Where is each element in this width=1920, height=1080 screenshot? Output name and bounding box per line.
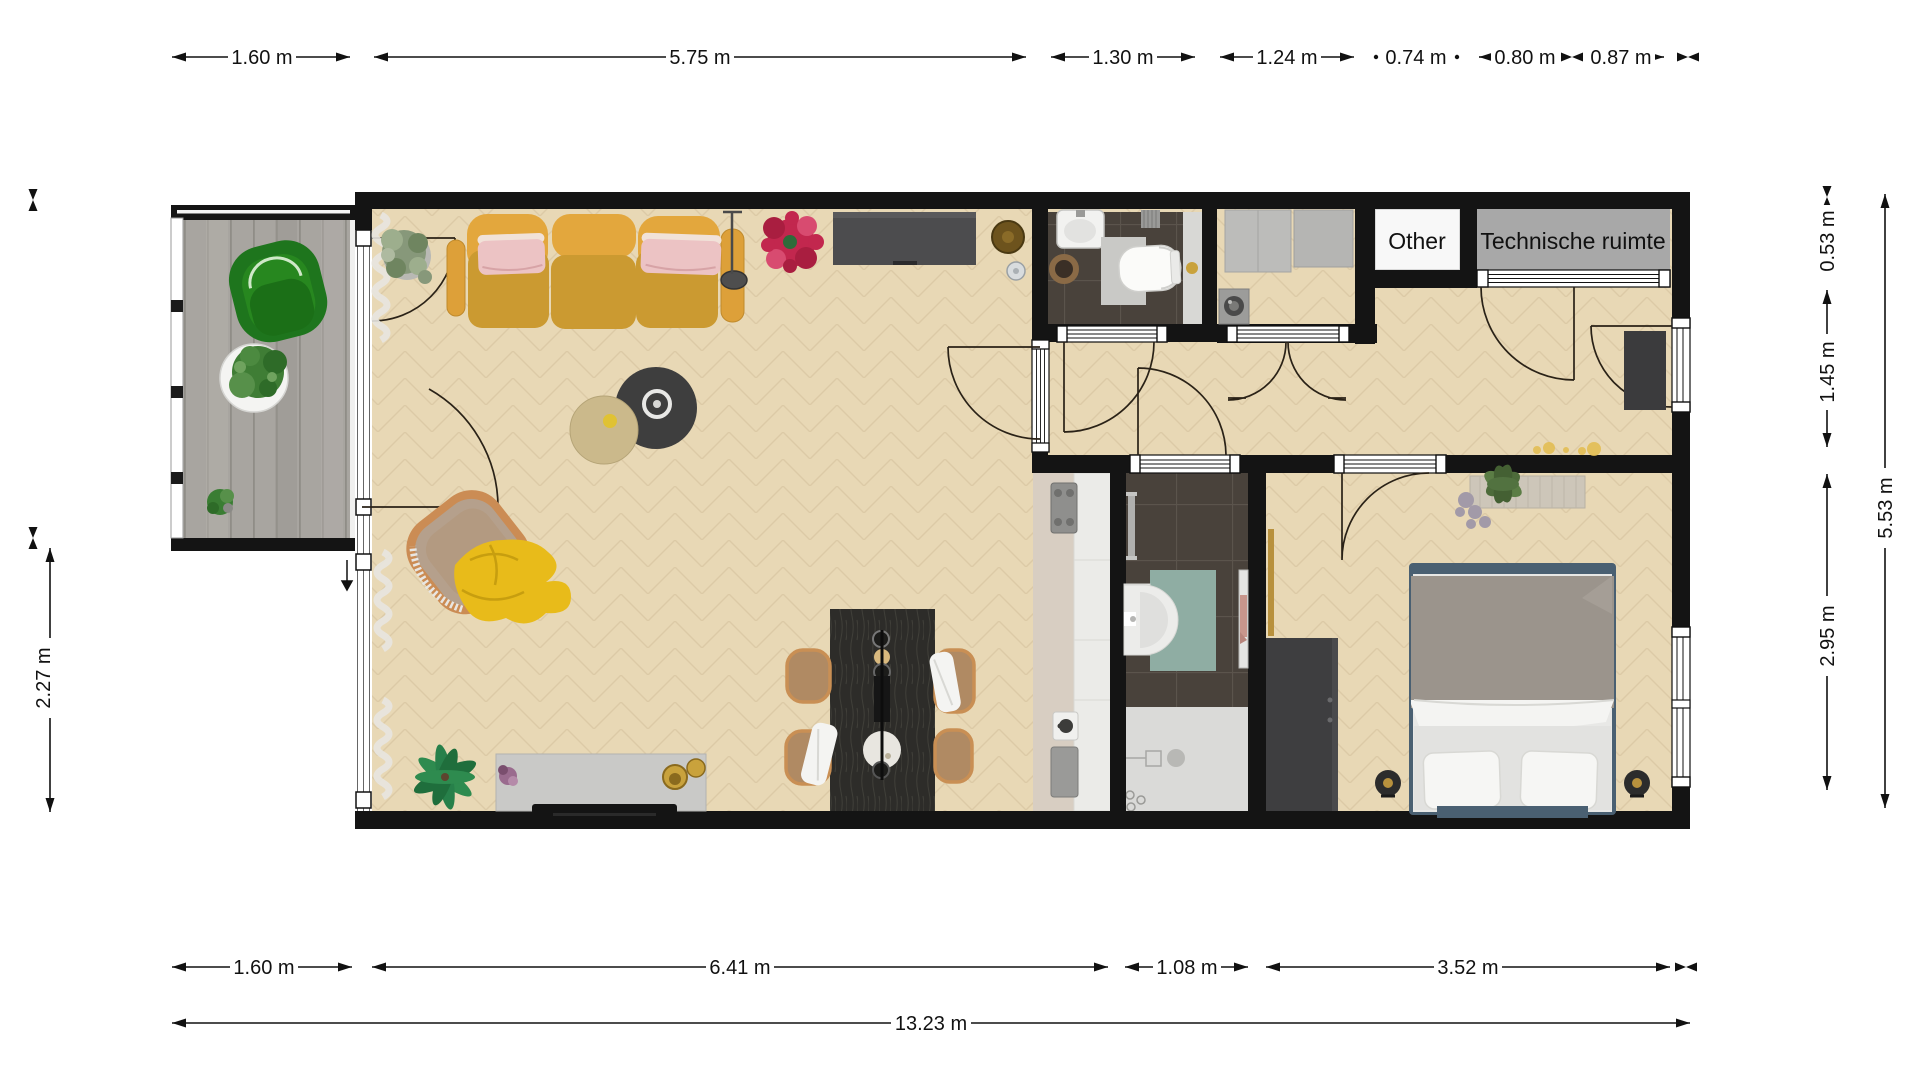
svg-text:2.27 m: 2.27 m [33,647,55,708]
svg-text:1.45 m: 1.45 m [1817,341,1839,402]
svg-text:1.30 m: 1.30 m [1092,47,1153,69]
svg-text:1.24 m: 1.24 m [1256,47,1317,69]
svg-text:1.60 m: 1.60 m [233,957,294,979]
svg-text:2.95 m: 2.95 m [1817,605,1839,666]
svg-text:0.80 m: 0.80 m [1494,47,1555,69]
svg-text:6.41 m: 6.41 m [709,957,770,979]
svg-text:Technische ruimte: Technische ruimte [1480,228,1665,254]
svg-text:3.52 m: 3.52 m [1437,957,1498,979]
svg-text:1.08 m: 1.08 m [1156,957,1217,979]
svg-text:0.53 m: 0.53 m [1817,210,1839,271]
svg-text:1.60 m: 1.60 m [231,47,292,69]
svg-text:5.75 m: 5.75 m [669,47,730,69]
svg-text:0.87 m: 0.87 m [1590,47,1651,69]
svg-text:0.74 m: 0.74 m [1385,47,1446,69]
svg-text:Other: Other [1388,228,1446,254]
svg-text:5.53 m: 5.53 m [1875,477,1897,538]
svg-text:13.23 m: 13.23 m [895,1013,967,1035]
